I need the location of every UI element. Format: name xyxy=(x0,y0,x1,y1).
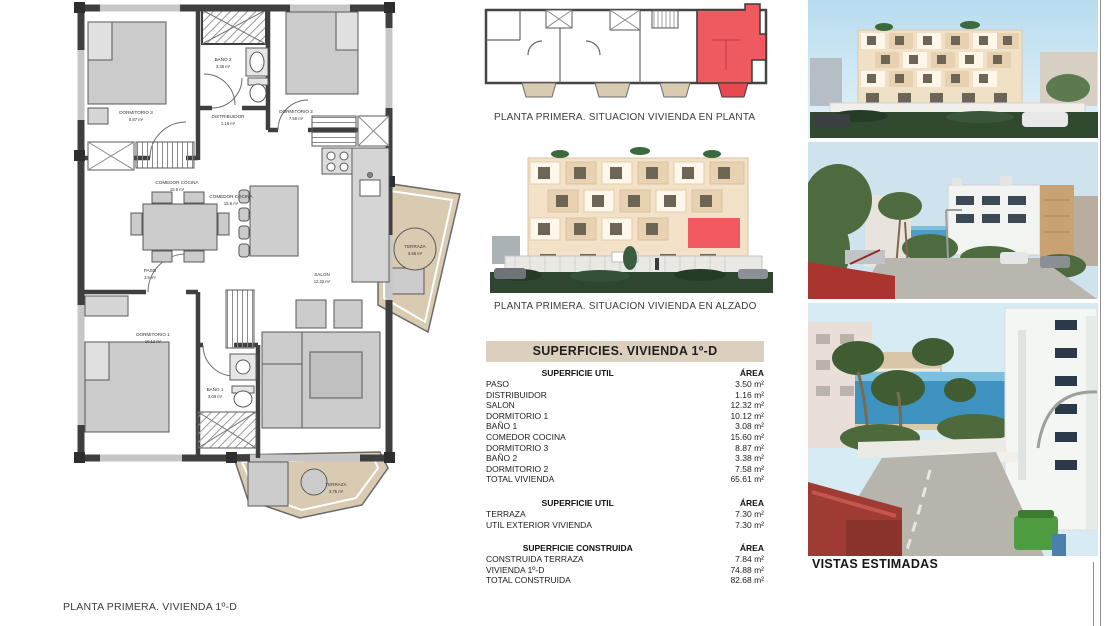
table-row: DORMITORIO 38.87 m² xyxy=(486,443,764,454)
street-view-photo xyxy=(808,142,1098,299)
car xyxy=(1022,112,1068,127)
room-label-comedor-cocina-2: COMEDOR COCINA xyxy=(209,194,253,199)
room-label-dormitorio-3: DORMITORIO 3 xyxy=(119,110,153,115)
room-label-paso: PASO xyxy=(144,268,157,273)
furniture xyxy=(85,12,389,448)
area-header: ÁREA xyxy=(669,368,764,379)
table-row: DORMITORIO 110.12 m² xyxy=(486,411,764,422)
surfaces-table: SUPERFICIES. VIVIENDA 1º-D SUPERFICIE UT… xyxy=(486,341,764,586)
footer-plan-title: PLANTA PRIMERA. VIVIENDA 1º-D xyxy=(63,601,237,613)
svg-text:3.55 m²: 3.55 m² xyxy=(408,251,423,256)
plan-situation-caption: PLANTA PRIMERA. SITUACION VIVIENDA EN PL… xyxy=(494,112,755,123)
table-row: BAÑO 13.08 m² xyxy=(486,421,764,432)
render-building xyxy=(858,21,1022,108)
building-elevation-render xyxy=(488,140,775,295)
table-row: TERRAZA7.30 m² xyxy=(486,509,764,520)
stair-cores xyxy=(546,10,678,30)
table-row: SALON12.32 m² xyxy=(486,400,764,411)
table-row: DORMITORIO 27.58 m² xyxy=(486,464,764,475)
room-label-terraza-side: TERRAZA xyxy=(404,244,426,249)
views-caption: VISTAS ESTIMADAS xyxy=(812,557,938,571)
svg-text:8.87 m²: 8.87 m² xyxy=(129,117,144,122)
area-header: ÁREA xyxy=(669,543,764,554)
apartment-floor-plan-drawing: DORMITORIO 3 8.87 m² BAÑO 2 3.38 m² DORM… xyxy=(30,0,470,600)
entrance-landing xyxy=(202,10,266,44)
svg-text:10.12 m²: 10.12 m² xyxy=(145,339,162,344)
table-row: VIVIENDA 1º-D74.88 m² xyxy=(486,565,764,576)
car xyxy=(814,114,850,127)
tall-white-building xyxy=(1005,308,1097,530)
terrace-bottom xyxy=(233,452,388,518)
svg-text:15.6 m²: 15.6 m² xyxy=(170,187,185,192)
room-label-distribuidor: DISTRIBUIDOR xyxy=(212,114,246,119)
building-render-photo xyxy=(808,0,1098,138)
svg-text:15.6 m²: 15.6 m² xyxy=(224,201,239,206)
table-row: BAÑO 23.38 m² xyxy=(486,453,764,464)
area-header: ÁREA xyxy=(669,498,764,509)
svg-text:3.75 m²: 3.75 m² xyxy=(329,489,344,494)
sea-view-photo xyxy=(808,303,1098,556)
svg-text:3.08 m²: 3.08 m² xyxy=(208,394,223,399)
room-label-comedor-cocina: COMEDOR COCINA xyxy=(155,180,199,185)
table-row: CONSTRUIDA TERRAZA7.84 m² xyxy=(486,554,764,565)
room-label-dormitorio-1: DORMITORIO 1 xyxy=(136,332,170,337)
svg-text:1.16 m²: 1.16 m² xyxy=(221,121,236,126)
elevation-situation-caption: PLANTA PRIMERA. SITUACION VIVIENDA EN AL… xyxy=(494,301,757,312)
svg-text:12.32 m²: 12.32 m² xyxy=(314,279,331,284)
room-label-salon: SALON xyxy=(314,272,330,277)
room-label-bano-2: BAÑO 2 xyxy=(215,56,232,62)
section-heading-util-2: SUPERFICIE UTIL ÁREA xyxy=(486,498,764,509)
room-label-bano-1: BAÑO 1 xyxy=(207,386,224,392)
svg-text:3.38 m²: 3.38 m² xyxy=(216,64,231,69)
brochure-page: DORMITORIO 3 8.87 m² BAÑO 2 3.38 m² DORM… xyxy=(0,0,1110,626)
table-row: UTIL EXTERIOR VIVIENDA7.30 m² xyxy=(486,520,764,531)
table-row: COMEDOR COCINA15.60 m² xyxy=(486,432,764,443)
table-row-total: TOTAL VIVIENDA65.61 m² xyxy=(486,474,764,485)
page-border-right-inner xyxy=(1093,562,1094,626)
plan-terraces xyxy=(522,83,690,97)
room-label-terraza: TERRAZA xyxy=(325,482,347,487)
section-heading-construida: SUPERFICIE CONSTRUIDA ÁREA xyxy=(486,543,764,554)
page-border-right xyxy=(1100,0,1101,626)
building-plan-situation-diagram xyxy=(470,0,770,100)
table-row-total: TOTAL CONSTRUIDA82.68 m² xyxy=(486,575,764,586)
table-row: PASO3.50 m² xyxy=(486,379,764,390)
highlighted-unit-elevation xyxy=(688,218,740,248)
room-label-dormitorio-2: DORMITORIO 2 xyxy=(279,109,313,114)
table-row: DISTRIBUIDOR1.16 m² xyxy=(486,390,764,401)
green-container xyxy=(1014,516,1058,550)
section-heading-util-1: SUPERFICIE UTIL ÁREA xyxy=(486,368,764,379)
svg-text:7.58 m²: 7.58 m² xyxy=(289,116,304,121)
svg-text:3.5 m²: 3.5 m² xyxy=(144,275,156,280)
pedestrian xyxy=(1052,534,1066,556)
surfaces-table-title: SUPERFICIES. VIVIENDA 1º-D xyxy=(486,341,764,362)
